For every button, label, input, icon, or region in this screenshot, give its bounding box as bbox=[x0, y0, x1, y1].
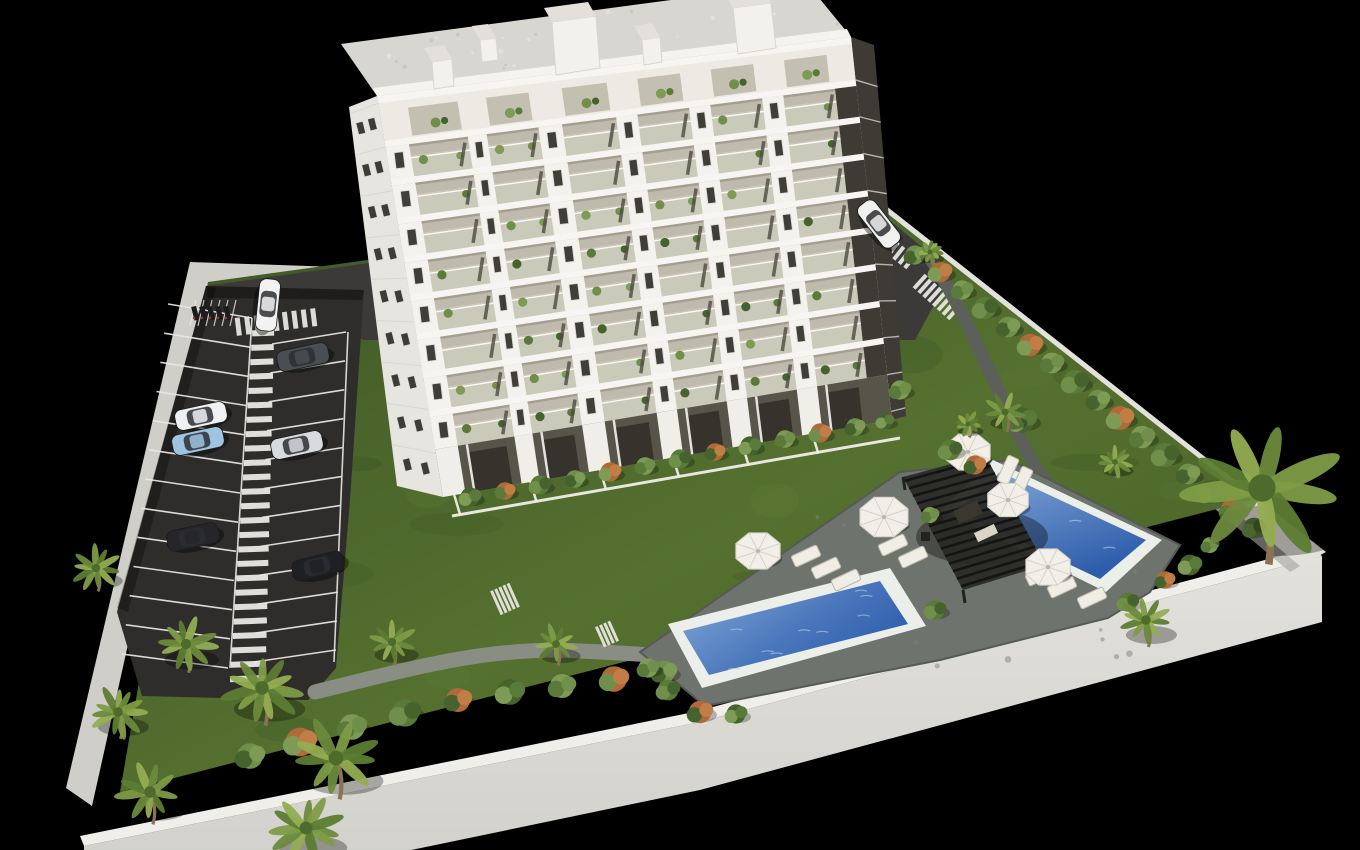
render-stage: Aerial 3D architectural rendering of a w… bbox=[0, 0, 1360, 850]
architectural-render-canvas: Aerial 3D architectural rendering of a w… bbox=[0, 0, 1360, 850]
